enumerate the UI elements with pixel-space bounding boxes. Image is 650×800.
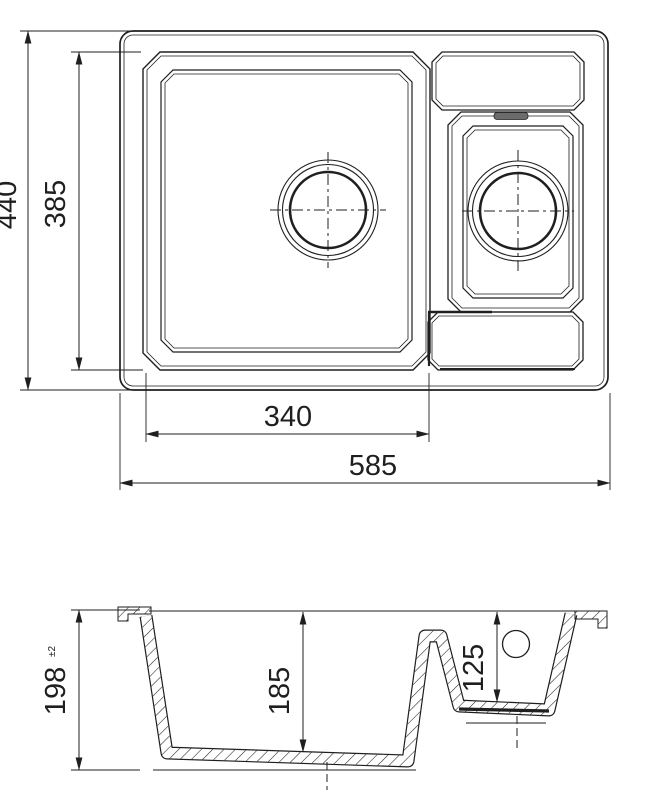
section-cut-walls	[146, 614, 571, 761]
tap-deck-outer	[432, 52, 584, 110]
dim-198: 198 ±2	[40, 610, 140, 770]
dim-198-tolerance: ±2	[47, 646, 58, 657]
drawing-canvas: 440 385 340 585	[0, 0, 650, 800]
dim-385: 385	[40, 52, 143, 370]
dim-185: 185	[264, 612, 303, 752]
main-bowl-opening-inner-line	[165, 74, 408, 348]
main-bowl-opening	[161, 70, 412, 352]
dim-585-label: 585	[349, 450, 397, 482]
dim-340-label: 340	[264, 401, 312, 433]
top-view	[120, 31, 608, 390]
right-flange	[575, 611, 607, 628]
small-drain	[462, 150, 574, 272]
main-drain	[270, 152, 386, 268]
dim-125-label: 125	[458, 644, 490, 692]
tap-deck-inner-line	[436, 56, 580, 106]
main-bowl-rim-outer	[143, 52, 430, 370]
dim-185-label: 185	[264, 667, 296, 715]
dim-340: 340	[146, 373, 429, 442]
lower-ledge-inner-line	[432, 316, 579, 366]
section-view	[118, 607, 607, 790]
overflow-slot	[494, 113, 528, 120]
tap-hole-circle	[503, 631, 530, 658]
sink-technical-drawing: 440 385 340 585	[0, 0, 650, 800]
dim-440-label: 440	[0, 181, 23, 229]
small-bowl-floor-bold	[459, 709, 549, 711]
small-bowl-rim-inner-line	[452, 116, 579, 308]
dim-585: 585	[120, 393, 610, 490]
lower-ledge-outer	[428, 312, 583, 370]
main-bowl-rim-outer2	[147, 56, 426, 366]
dim-385-label: 385	[40, 180, 72, 228]
dim-125: 125	[458, 612, 497, 702]
dim-198-label: 198	[40, 667, 72, 715]
